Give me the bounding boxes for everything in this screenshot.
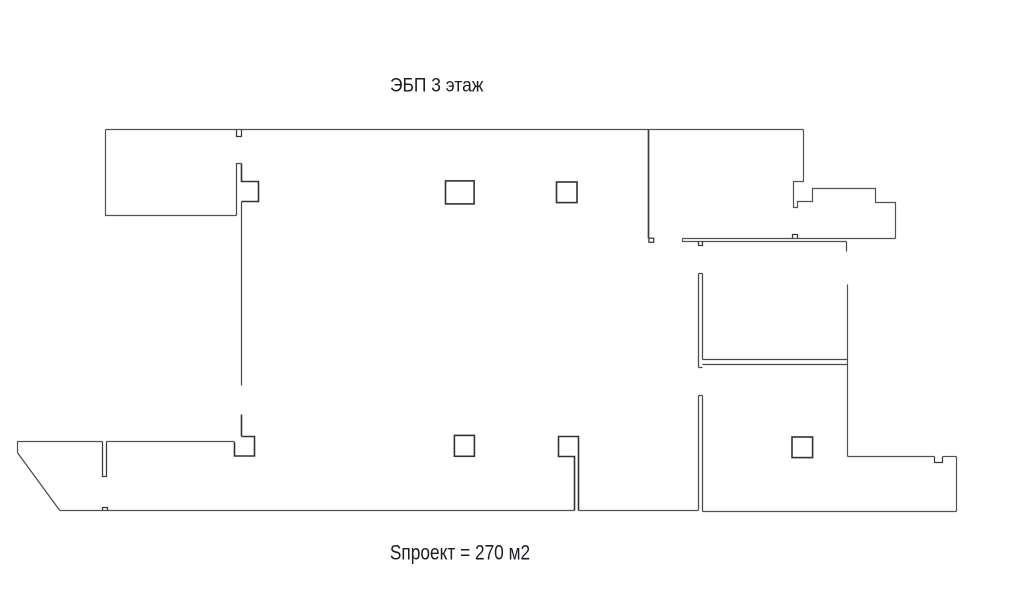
svg-text:Sпроект = 270 м2: Sпроект = 270 м2 — [390, 541, 530, 565]
svg-text:ЭБП 3 этаж: ЭБП 3 этаж — [390, 75, 484, 97]
